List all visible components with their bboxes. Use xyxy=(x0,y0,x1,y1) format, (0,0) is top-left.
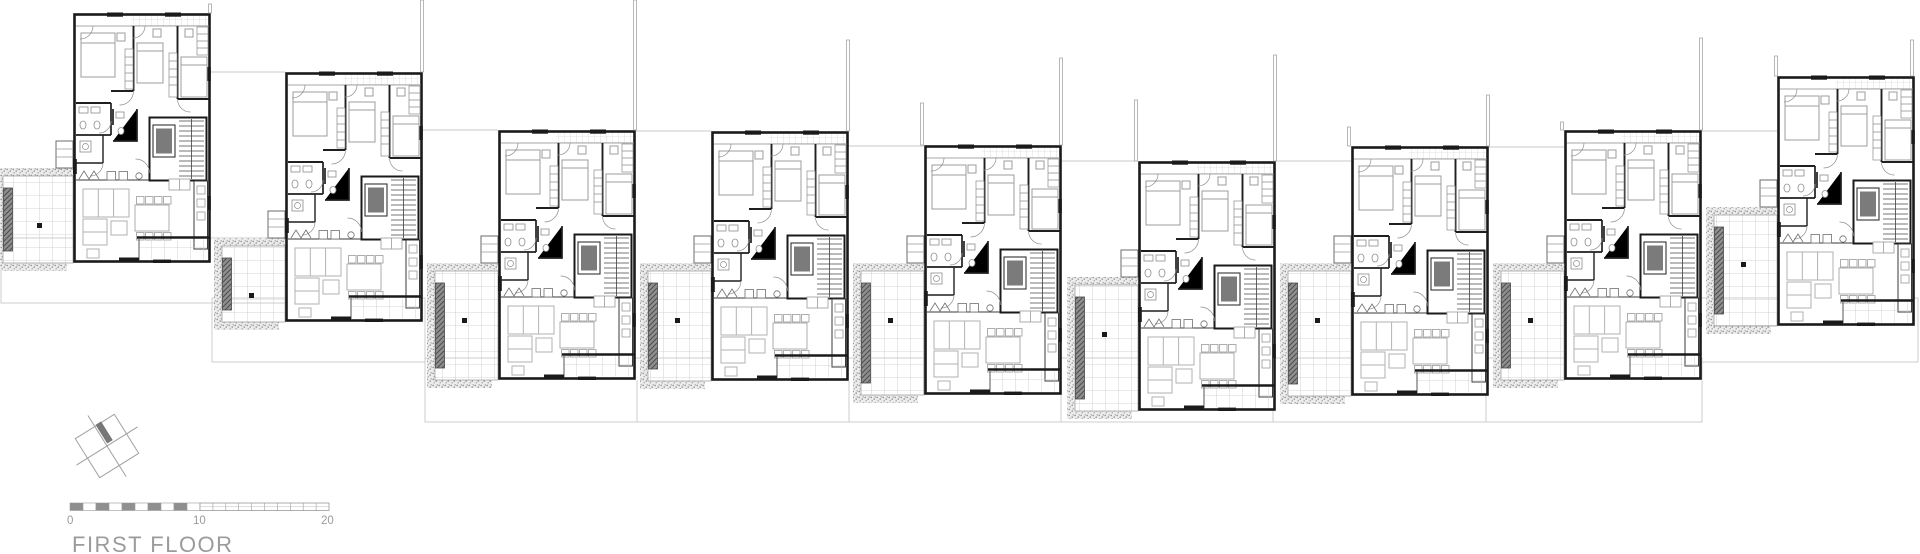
unit-9-terrace xyxy=(1706,180,1777,334)
drawing-title: FIRST FLOOR xyxy=(72,532,234,554)
scale-label-20: 20 xyxy=(321,515,334,527)
entry-steps xyxy=(1334,236,1351,263)
terraces xyxy=(0,141,1777,419)
unit-5 xyxy=(924,145,1062,396)
entry-steps xyxy=(907,236,924,263)
planter-strip xyxy=(1502,283,1511,368)
party-wall-line xyxy=(209,4,212,13)
terrace-drain xyxy=(1102,332,1107,337)
terrace-tiles xyxy=(3,176,73,263)
party-wall-line xyxy=(921,103,924,145)
terrace-drain xyxy=(1315,318,1320,323)
entry-steps xyxy=(56,141,73,168)
unit-1 xyxy=(73,13,211,264)
terrace-drain xyxy=(1528,318,1533,323)
housing-units xyxy=(73,13,1915,412)
north-symbol xyxy=(57,396,156,495)
party-wall-line xyxy=(1700,38,1703,130)
party-wall-line xyxy=(1135,100,1138,161)
entry-steps xyxy=(1121,250,1138,277)
party-wall-line xyxy=(847,40,850,131)
terrace-drain xyxy=(675,318,680,323)
party-wall-line xyxy=(1561,122,1564,130)
unit-4-terrace xyxy=(640,236,711,389)
entry-steps xyxy=(1547,236,1564,263)
terrace-drain xyxy=(249,293,254,298)
scale-label-10: 10 xyxy=(193,515,206,527)
terrace-drain xyxy=(1741,262,1746,267)
planter-strip xyxy=(4,188,13,251)
floor-plan-sheet: 0 10 20 FIRST FLOOR xyxy=(0,0,1920,554)
unit-6 xyxy=(1138,161,1276,412)
unit-8 xyxy=(1564,130,1702,381)
party-wall-line xyxy=(1274,55,1277,161)
unit-7 xyxy=(1351,146,1489,397)
entry-steps xyxy=(1760,180,1777,207)
unit-1-terrace xyxy=(0,141,73,271)
planter-strip xyxy=(862,283,871,383)
planter-strip xyxy=(1715,227,1724,314)
scale-bar xyxy=(70,503,329,511)
planter-strip xyxy=(1076,297,1085,399)
floor-plan-drawing: 0 10 20 FIRST FLOOR xyxy=(0,0,1920,554)
party-wall-line xyxy=(1487,95,1490,146)
entry-steps xyxy=(481,236,498,263)
unit-5-terrace xyxy=(853,236,924,403)
party-wall-line xyxy=(1060,58,1063,145)
unit-9 xyxy=(1777,76,1915,327)
party-wall-line xyxy=(634,0,637,130)
unit-7-terrace xyxy=(1280,236,1351,404)
party-wall-line xyxy=(1348,127,1351,146)
unit-8-terrace xyxy=(1493,236,1564,388)
planter-strip xyxy=(649,283,658,369)
entry-steps xyxy=(268,211,285,238)
unit-2 xyxy=(285,72,423,323)
unit-2-terrace xyxy=(214,211,285,330)
party-wall-line xyxy=(1911,40,1914,76)
planter-strip xyxy=(1289,283,1298,384)
unit-3 xyxy=(498,130,636,381)
party-wall-line xyxy=(1775,56,1778,76)
unit-6-terrace xyxy=(1067,250,1138,419)
terrace-drain xyxy=(37,223,42,228)
terrace-drain xyxy=(888,318,893,323)
unit-3-terrace xyxy=(427,236,498,388)
planter-strip xyxy=(223,258,232,310)
party-wall-line xyxy=(421,0,424,72)
scale-label-0: 0 xyxy=(67,515,73,527)
unit-4 xyxy=(711,131,849,382)
planter-strip xyxy=(436,283,445,368)
annotations: 0 10 20 FIRST FLOOR xyxy=(57,396,333,554)
entry-steps xyxy=(694,236,711,263)
terrace-drain xyxy=(462,318,467,323)
